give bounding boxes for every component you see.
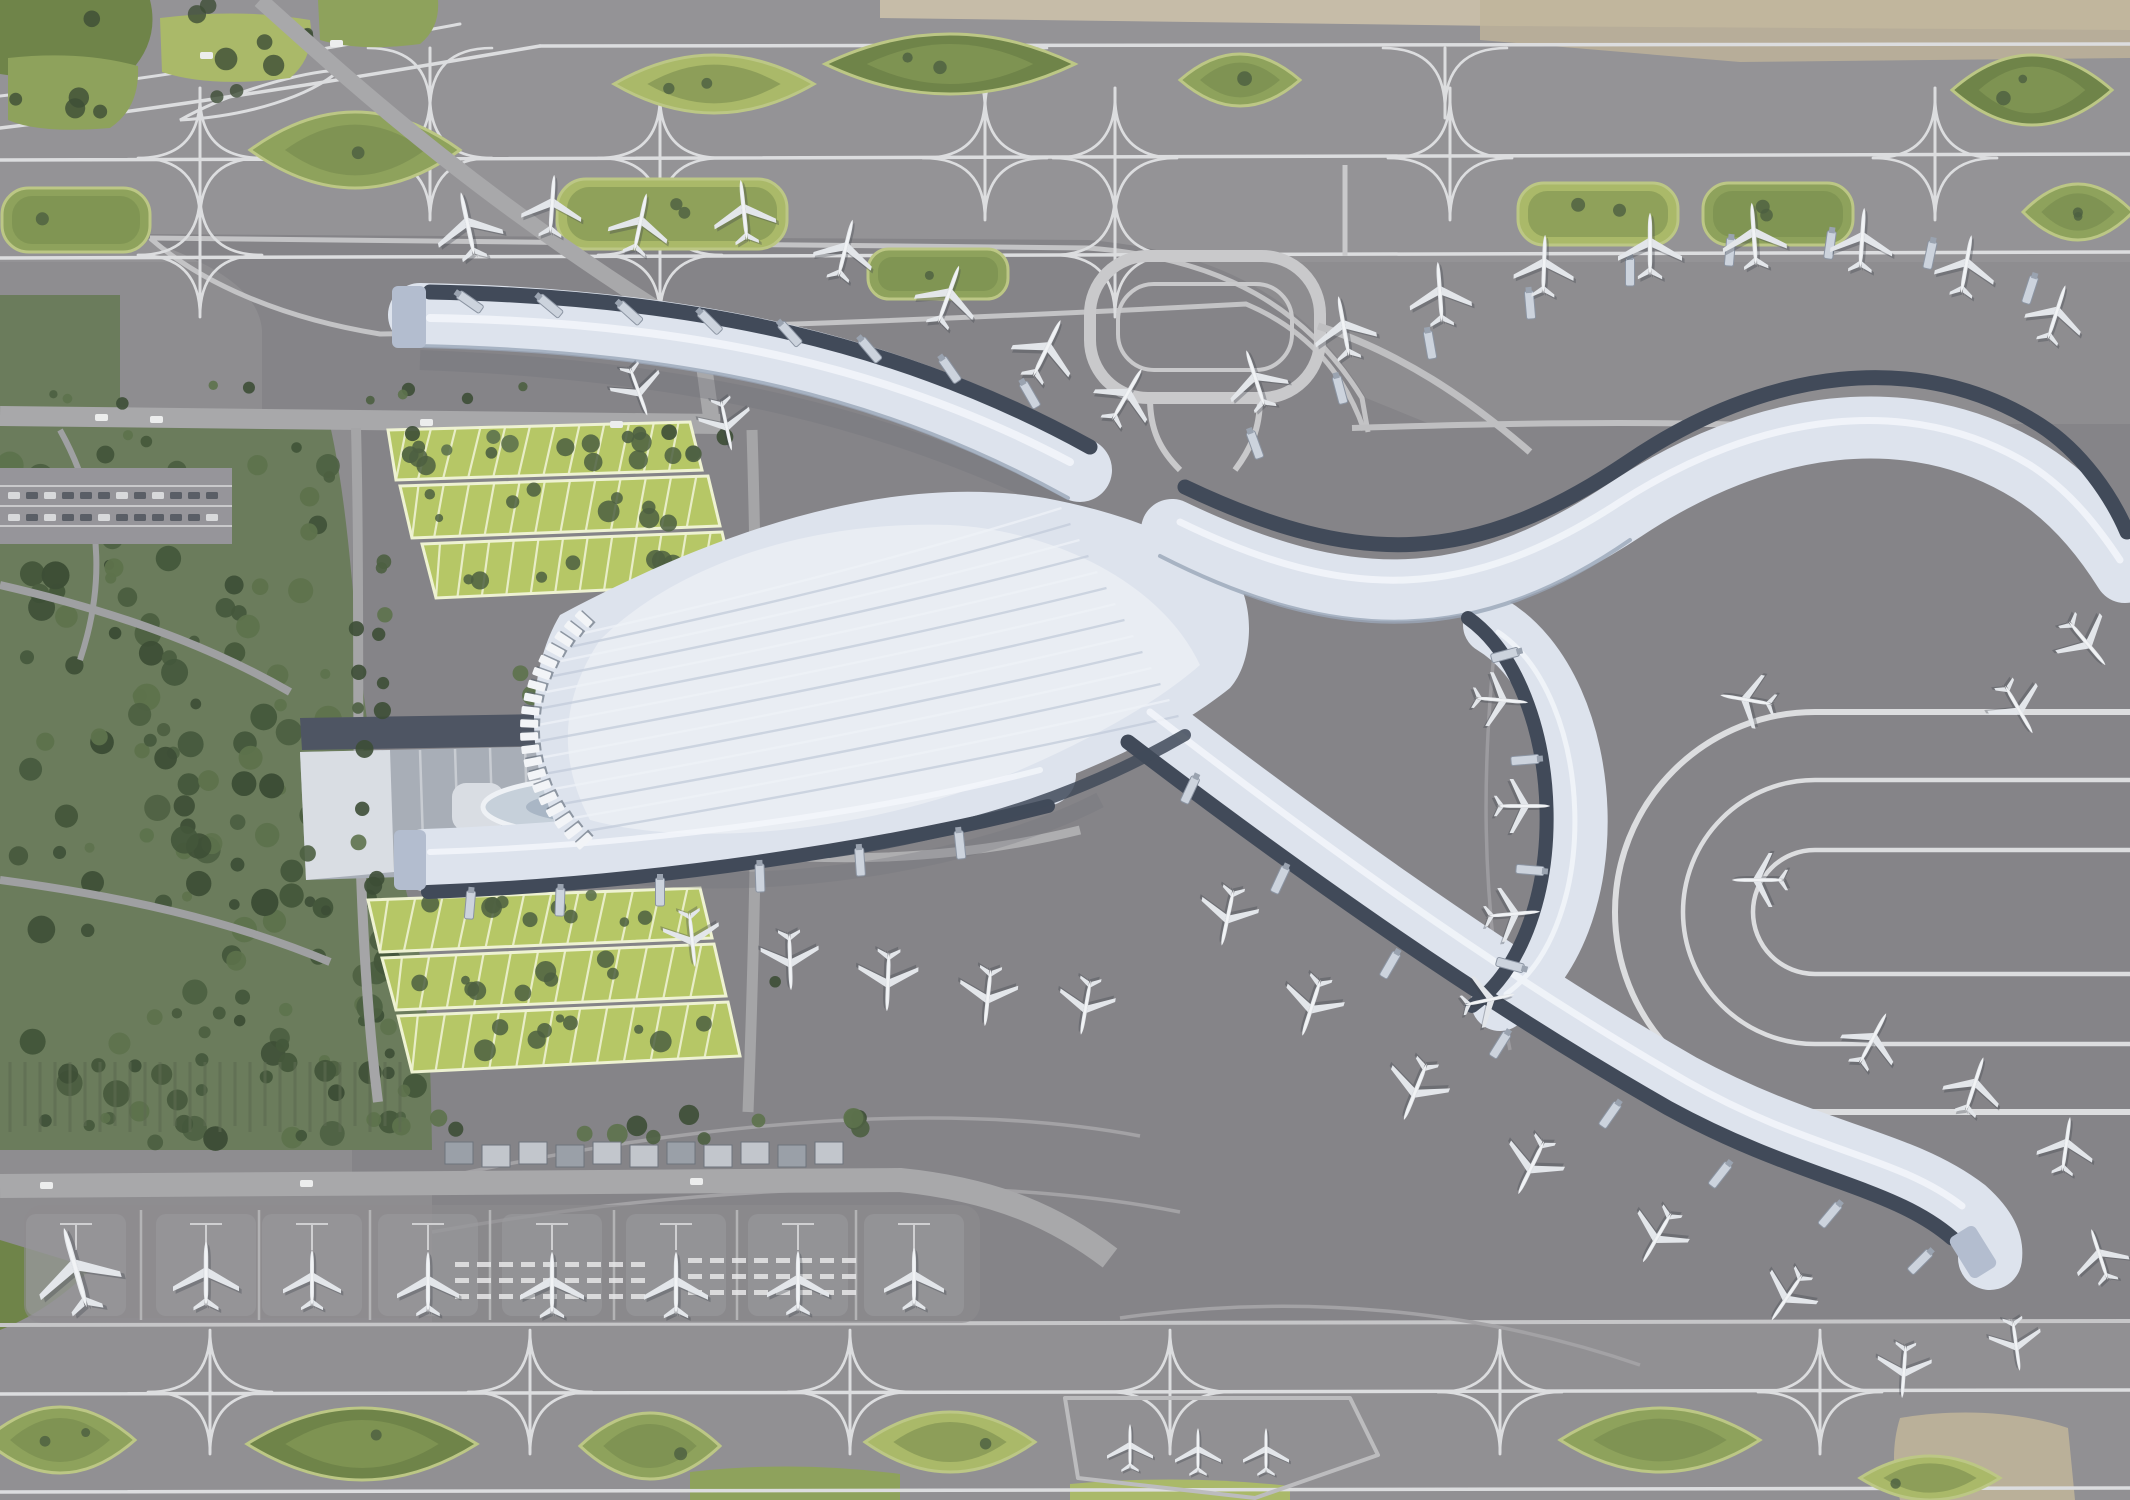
service-buildings-row [445,1142,843,1167]
scene-canvas [0,0,2130,1500]
concourse-tip-southwest [394,830,426,890]
canopy-tick [520,730,540,740]
canopy-tick [520,718,540,728]
garage-row [400,476,720,538]
green-strip-bottom [690,1466,900,1500]
concourse-tip-northwest [392,286,426,348]
airport-aerial-rendering: Aerial rendering of an airport master pl… [0,0,2130,1500]
surface-parking-lot [0,468,232,544]
jet-bridge [854,844,865,877]
jet-bridge [656,874,665,906]
jet-bridge [555,884,565,916]
jet-bridge [755,860,765,892]
garage-row [388,422,702,480]
grass-island [2,188,150,252]
